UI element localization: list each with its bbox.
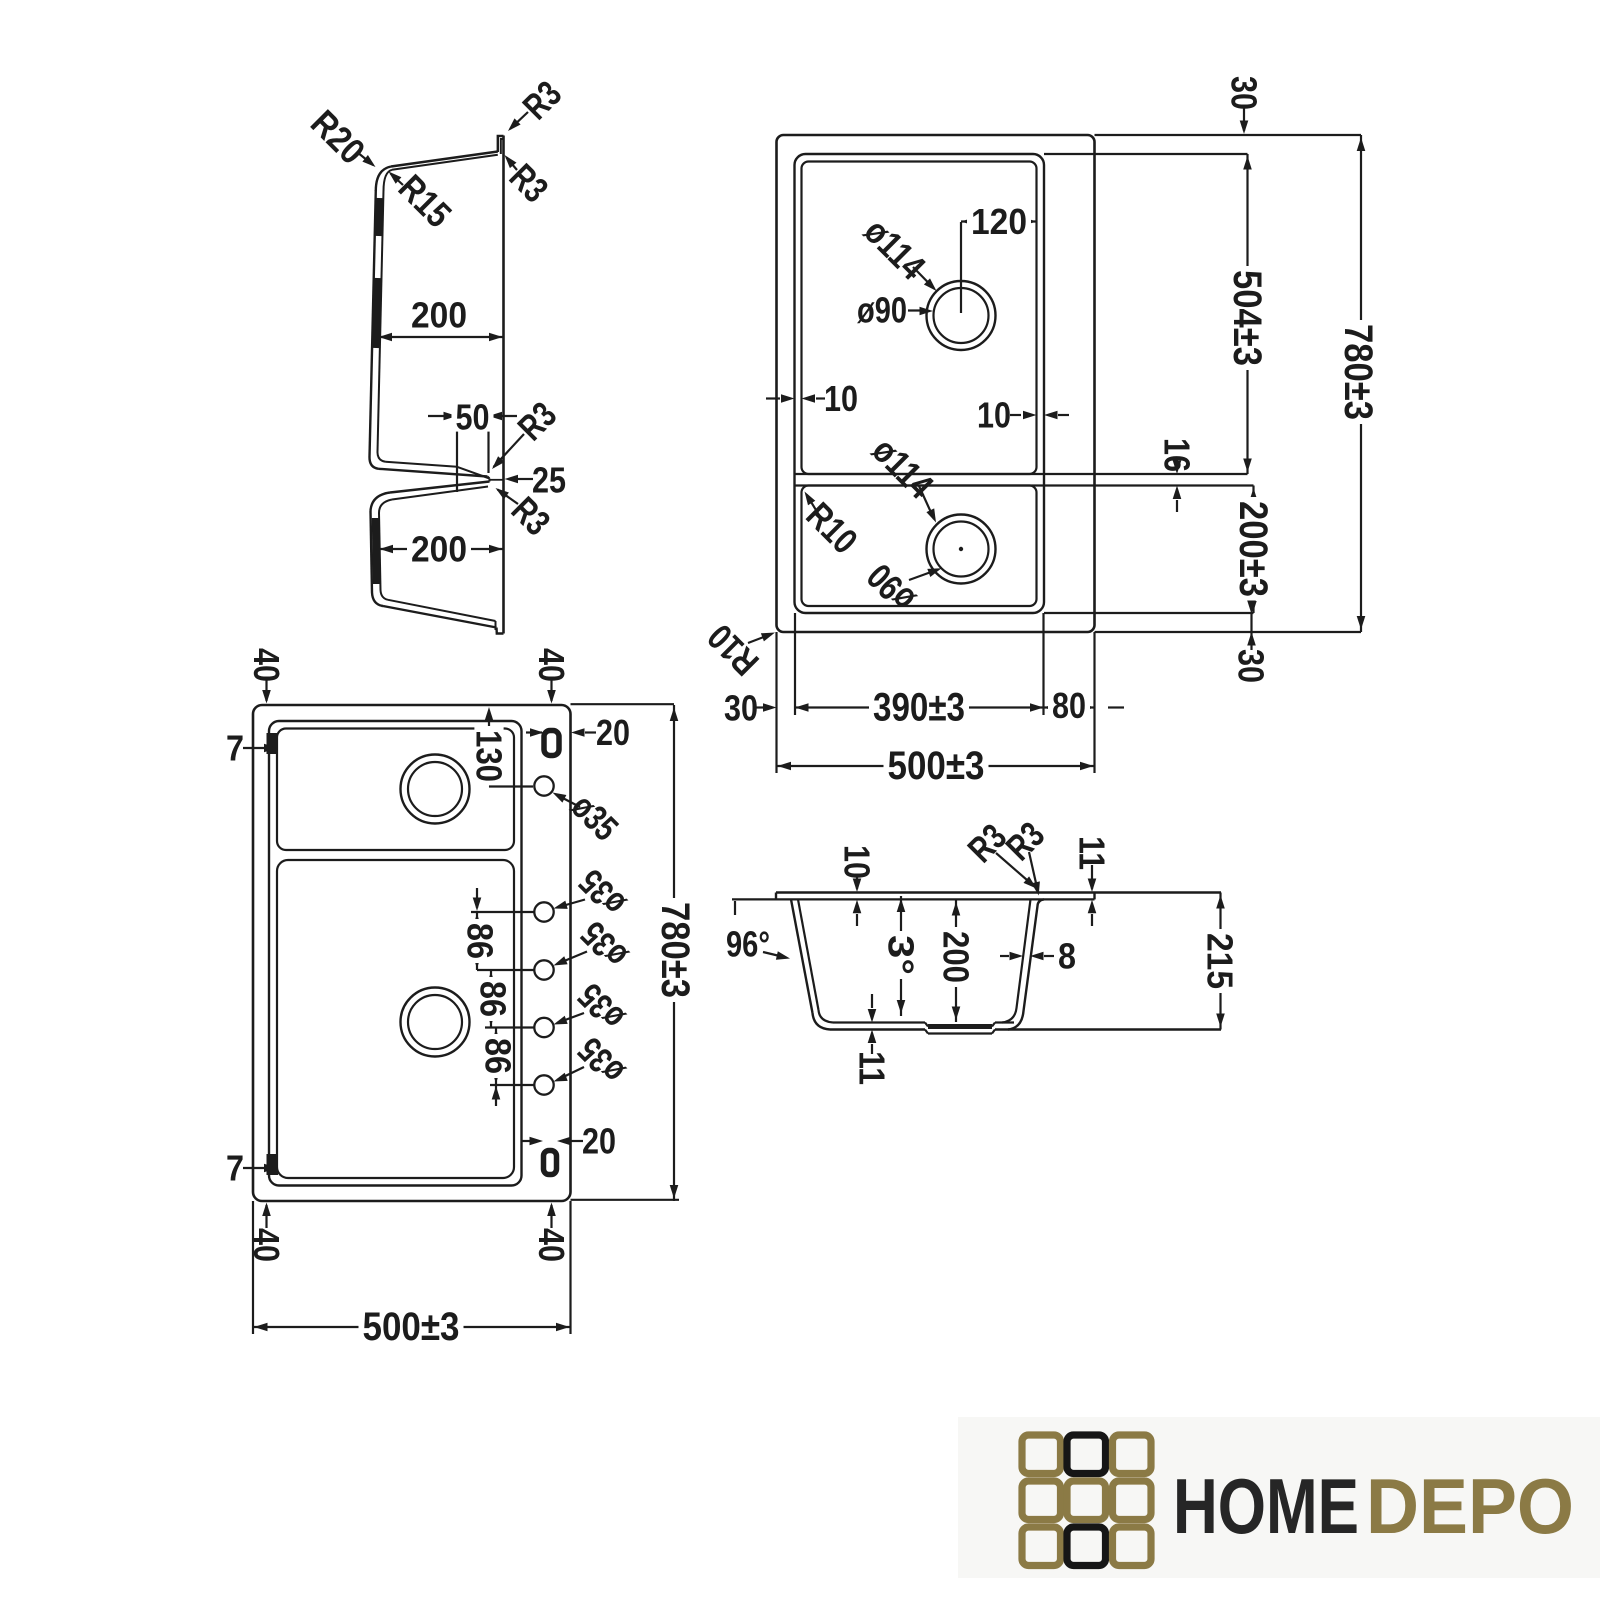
svg-text:DEPO: DEPO — [1366, 1462, 1574, 1550]
svg-text:30: 30 — [724, 688, 758, 729]
svg-text:200: 200 — [411, 529, 467, 570]
svg-text:30: 30 — [1231, 649, 1272, 683]
svg-text:86: 86 — [473, 981, 514, 1017]
svg-text:200: 200 — [936, 931, 977, 983]
svg-text:3°: 3° — [881, 935, 922, 975]
svg-text:504±3: 504±3 — [1225, 270, 1269, 366]
svg-text:130: 130 — [469, 730, 510, 782]
svg-text:40: 40 — [246, 648, 287, 682]
svg-text:215: 215 — [1200, 933, 1241, 989]
svg-text:7: 7 — [226, 1148, 244, 1189]
svg-text:96°: 96° — [726, 924, 770, 965]
svg-text:390±3: 390±3 — [873, 686, 965, 730]
svg-text:HOME: HOME — [1173, 1462, 1359, 1550]
svg-text:80: 80 — [1052, 685, 1086, 726]
svg-text:11: 11 — [852, 1051, 893, 1085]
svg-text:86: 86 — [460, 923, 501, 959]
svg-text:10: 10 — [977, 395, 1011, 436]
svg-text:30: 30 — [1224, 76, 1265, 110]
svg-text:120: 120 — [971, 201, 1027, 242]
svg-text:20: 20 — [582, 1121, 616, 1162]
svg-text:11: 11 — [1072, 836, 1113, 870]
svg-text:86: 86 — [478, 1038, 519, 1074]
svg-text:780±3: 780±3 — [653, 902, 697, 998]
svg-text:200: 200 — [411, 295, 467, 336]
svg-text:10: 10 — [837, 845, 878, 879]
svg-text:780±3: 780±3 — [1336, 324, 1380, 420]
svg-text:10: 10 — [824, 378, 858, 419]
svg-text:200±3: 200±3 — [1231, 501, 1275, 597]
svg-text:500±3: 500±3 — [363, 1305, 460, 1349]
svg-text:500±3: 500±3 — [888, 744, 985, 788]
svg-text:40: 40 — [531, 1228, 572, 1262]
svg-text:20: 20 — [596, 712, 630, 753]
svg-text:8: 8 — [1058, 936, 1076, 977]
svg-text:ø90: ø90 — [857, 290, 907, 331]
svg-text:40: 40 — [531, 648, 572, 682]
svg-text:7: 7 — [226, 728, 244, 769]
svg-text:50: 50 — [456, 397, 490, 438]
